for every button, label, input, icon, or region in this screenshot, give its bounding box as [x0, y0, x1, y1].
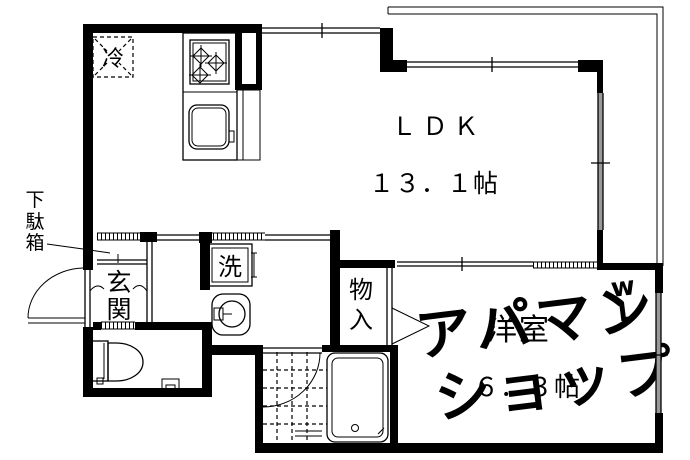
storage-label-char-2: 入: [349, 306, 373, 334]
entrance-label-char-2: 関: [106, 295, 131, 324]
entrance-label-char-1: 玄: [106, 268, 131, 297]
shoe-cabinet-label-char-2: 駄: [25, 211, 44, 233]
entrance-label: 玄 関: [106, 268, 131, 324]
floor-plan: アパマン ショップ w L: [0, 0, 690, 460]
room-size-western: ６．３帖: [473, 373, 581, 403]
shoe-cabinet-label-char-1: 下: [25, 189, 44, 211]
storage-label-char-1: 物: [349, 276, 373, 304]
pipe-duct: [235, 24, 262, 90]
washer-label: 洗: [218, 253, 242, 281]
shoe-cabinet-label: 下 駄 箱: [25, 189, 44, 254]
room-label-ldk: ＬＤＫ: [391, 112, 484, 141]
shoe-cabinet-label-char-3: 箱: [25, 232, 44, 254]
room-label-western: 洋室: [487, 313, 551, 348]
room-size-ldk: １３．１帖: [369, 169, 499, 198]
shoe-cabinet: [97, 233, 140, 240]
refrigerator-label: 冷: [102, 47, 124, 72]
washroom-sliding-door: [212, 233, 265, 240]
